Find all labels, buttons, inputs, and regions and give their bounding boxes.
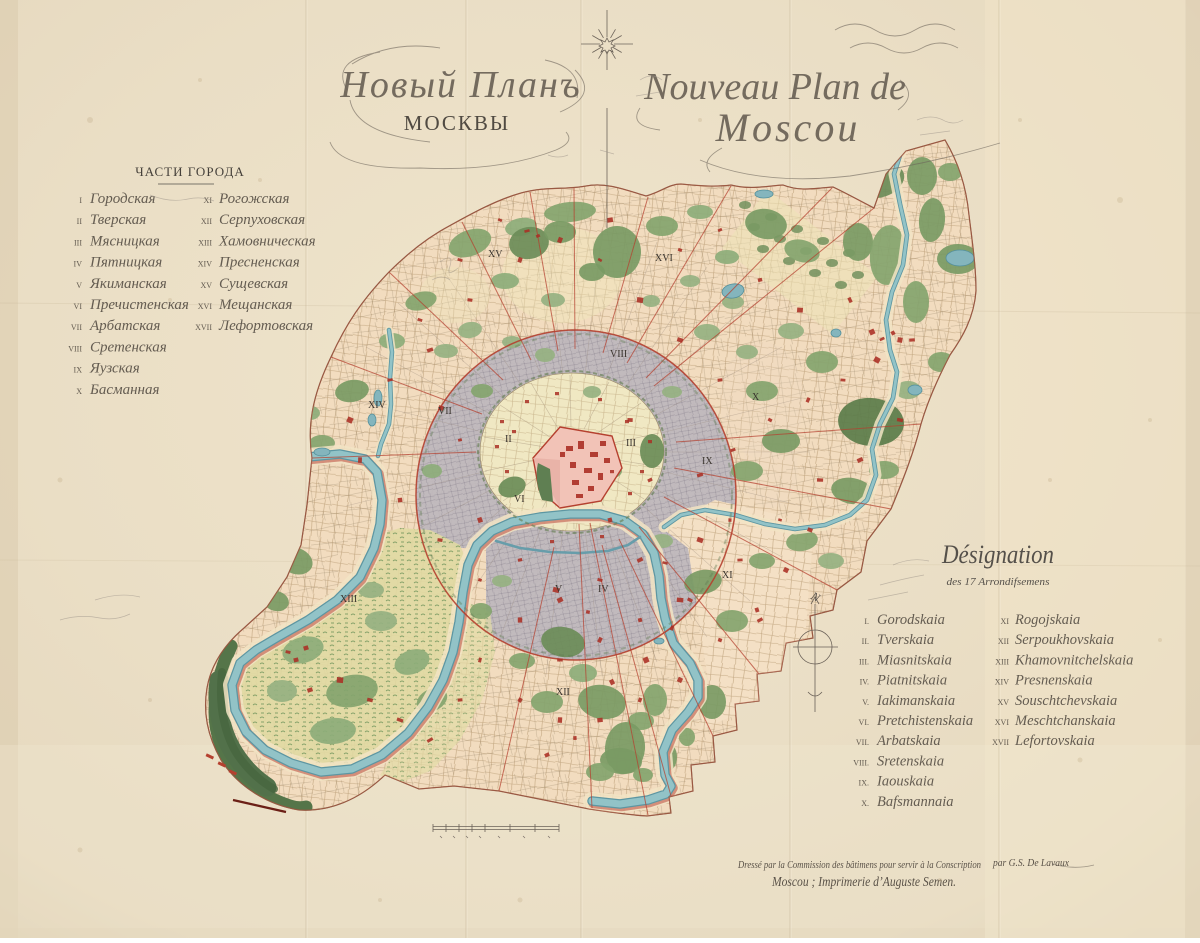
svg-text:Presnenskaia: Presnenskaia — [1014, 673, 1093, 689]
svg-text:I.: I. — [864, 617, 869, 626]
svg-text:VII: VII — [438, 406, 452, 417]
svg-text:II: II — [77, 217, 83, 226]
svg-text:Pretchistenskaia: Pretchistenskaia — [876, 713, 973, 729]
svg-text:IX.: IX. — [859, 779, 869, 788]
svg-text:VII.: VII. — [856, 738, 869, 747]
svg-text:par G.S. De Lavaux: par G.S. De Lavaux — [992, 858, 1069, 869]
svg-text:XIII: XIII — [995, 657, 1009, 666]
svg-text:Désignation: Désignation — [941, 540, 1054, 569]
svg-text:Iaouskaia: Iaouskaia — [876, 774, 934, 790]
svg-text:VIII.: VIII. — [853, 758, 869, 767]
svg-text:VI: VI — [74, 302, 83, 311]
svg-text:Piatnitskaia: Piatnitskaia — [876, 673, 947, 689]
svg-text:XIV: XIV — [368, 400, 387, 411]
svg-text:III: III — [74, 238, 82, 247]
svg-text:Тверская: Тверская — [90, 212, 146, 228]
svg-text:Якиманская: Якиманская — [89, 276, 167, 292]
svg-text:XIII: XIII — [340, 594, 357, 605]
svg-text:Miasnitskaia: Miasnitskaia — [876, 652, 952, 668]
svg-text:XI: XI — [1001, 617, 1010, 626]
svg-text:Мясницкая: Мясницкая — [89, 233, 160, 249]
svg-text:VI.: VI. — [859, 718, 869, 727]
svg-text:Tverskaia: Tverskaia — [877, 632, 934, 648]
svg-text:X: X — [76, 387, 82, 396]
svg-text:Moscou: Moscou — [715, 105, 861, 150]
svg-text:XI: XI — [204, 196, 213, 205]
svg-text:XVII: XVII — [992, 738, 1009, 747]
svg-text:Gorodskaia: Gorodskaia — [877, 612, 945, 628]
svg-text:XVII: XVII — [195, 323, 212, 332]
svg-text:X: X — [752, 392, 760, 403]
svg-text:VIII: VIII — [68, 344, 82, 353]
svg-text:IV.: IV. — [860, 678, 869, 687]
svg-text:XIII: XIII — [198, 238, 212, 247]
svg-text:XVI: XVI — [198, 302, 213, 311]
svg-text:Serpoukhovskaia: Serpoukhovskaia — [1015, 632, 1114, 648]
svg-text:Arbatskaia: Arbatskaia — [876, 733, 941, 749]
svg-text:Пречистенская: Пречистенская — [89, 297, 189, 313]
svg-text:Nouveau Plan de: Nouveau Plan de — [643, 66, 906, 108]
svg-text:VII: VII — [71, 323, 82, 332]
svg-text:des 17 Arrondifsemens: des 17 Arrondifsemens — [947, 576, 1050, 588]
svg-text:Iakimanskaia: Iakimanskaia — [876, 693, 955, 709]
svg-text:Арбатская: Арбатская — [89, 318, 160, 334]
svg-text:Городская: Городская — [89, 191, 155, 207]
svg-text:XI: XI — [722, 570, 733, 581]
svg-text:IX: IX — [74, 366, 83, 375]
svg-text:XIV: XIV — [198, 260, 212, 269]
svg-text:Мещанская: Мещанская — [218, 297, 292, 313]
svg-text:Сретенская: Сретенская — [90, 339, 167, 355]
svg-text:X.: X. — [861, 799, 869, 808]
svg-text:Серпуховская: Серпуховская — [219, 212, 305, 228]
svg-text:VI: VI — [514, 494, 525, 505]
svg-text:XII: XII — [998, 637, 1009, 646]
svg-text:Lefortovskaia: Lefortovskaia — [1014, 733, 1095, 749]
svg-text:XVI: XVI — [655, 253, 673, 264]
svg-text:V.: V. — [862, 698, 869, 707]
svg-text:III.: III. — [859, 657, 869, 666]
svg-text:Khamovnitchelskaia: Khamovnitchelskaia — [1014, 652, 1133, 668]
svg-text:XII: XII — [556, 687, 570, 698]
svg-text:Moscou ; Imprimerie d’Auguste: Moscou ; Imprimerie d’Auguste Semen. — [771, 874, 956, 889]
svg-text:V: V — [555, 584, 563, 595]
svg-text:Лефортовская: Лефортовская — [218, 318, 313, 334]
svg-text:IV: IV — [598, 584, 609, 595]
svg-text:XIV: XIV — [995, 678, 1009, 687]
svg-text:Рогожская: Рогожская — [218, 191, 289, 207]
svg-text:XV: XV — [488, 249, 503, 260]
svg-text:Sretenskaia: Sretenskaia — [877, 753, 944, 769]
svg-text:Пресненская: Пресненская — [218, 255, 300, 271]
svg-text:Новый Планъ: Новый Планъ — [339, 64, 581, 106]
svg-text:XV: XV — [997, 698, 1009, 707]
svg-text:Басманная: Басманная — [89, 382, 159, 398]
svg-text:Rogojskaia: Rogojskaia — [1014, 612, 1080, 628]
svg-text:Meschtchanskaia: Meschtchanskaia — [1014, 713, 1116, 729]
svg-text:Souschtchevskaia: Souschtchevskaia — [1015, 693, 1117, 709]
svg-text:Сущевская: Сущевская — [219, 276, 288, 292]
svg-text:Dressé par la Commission des b: Dressé par la Commission des bâtimens po… — [737, 860, 981, 871]
svg-text:ЧАСТИ ГОРОДА: ЧАСТИ ГОРОДА — [135, 164, 244, 179]
svg-text:XV: XV — [200, 281, 212, 290]
svg-text:IV: IV — [74, 260, 83, 269]
svg-text:МОСКВЫ: МОСКВЫ — [404, 111, 510, 135]
svg-text:Пятницкая: Пятницкая — [89, 255, 162, 271]
svg-text:Яузская: Яузская — [89, 361, 140, 377]
svg-text:Хамовническая: Хамовническая — [218, 233, 316, 249]
svg-text:XVI: XVI — [995, 718, 1010, 727]
svg-text:I: I — [79, 196, 82, 205]
svg-text:V: V — [76, 281, 82, 290]
svg-text:XII: XII — [201, 217, 212, 226]
svg-text:IX: IX — [702, 456, 713, 467]
svg-text:III: III — [626, 438, 636, 449]
svg-text:II: II — [505, 434, 512, 445]
svg-text:Bafsmannaia: Bafsmannaia — [877, 794, 954, 810]
svg-text:VIII: VIII — [610, 349, 627, 360]
svg-text:II.: II. — [862, 637, 869, 646]
